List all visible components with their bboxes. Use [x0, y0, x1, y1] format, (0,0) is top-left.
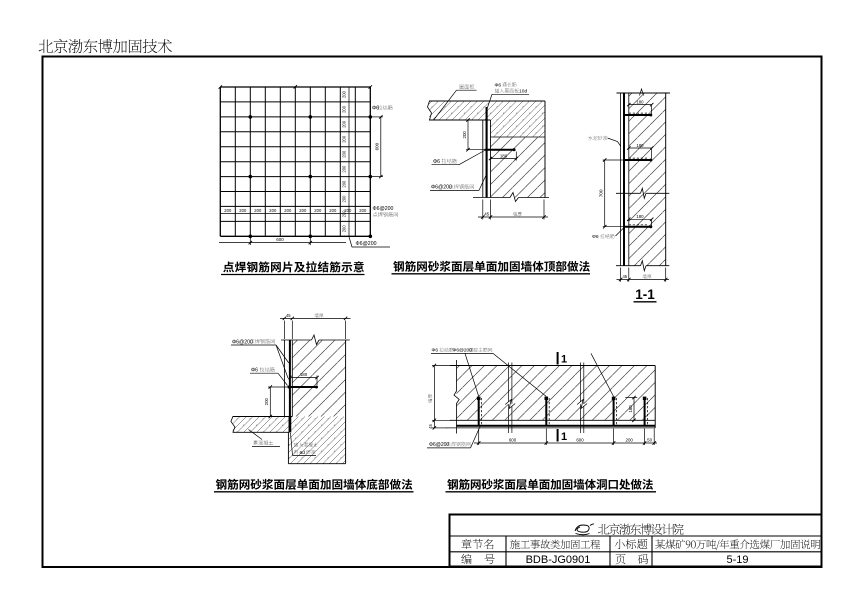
svg-text:700: 700 — [599, 189, 604, 197]
svg-text:Φ6@200: Φ6@200 — [356, 241, 377, 247]
svg-text:200: 200 — [341, 150, 346, 158]
svg-text:200: 200 — [264, 397, 269, 405]
svg-text:180: 180 — [300, 372, 308, 377]
svg-text:BDB-JG0901: BDB-JG0901 — [526, 554, 591, 566]
svg-text:Φ6: Φ6 — [495, 82, 502, 88]
svg-text:200: 200 — [299, 208, 307, 213]
svg-text:600: 600 — [375, 142, 380, 150]
svg-text:200: 200 — [341, 135, 346, 143]
svg-text:200: 200 — [329, 208, 337, 213]
svg-text:200: 200 — [341, 90, 346, 98]
svg-text:180: 180 — [500, 153, 508, 158]
svg-text:6d: 6d — [300, 450, 306, 456]
svg-text:Φ6: Φ6 — [592, 234, 599, 240]
svg-text:5-19: 5-19 — [726, 554, 748, 566]
svg-text:200: 200 — [269, 208, 277, 213]
svg-text:200: 200 — [462, 131, 467, 139]
svg-text:200: 200 — [314, 208, 322, 213]
svg-text:180: 180 — [628, 405, 633, 413]
svg-text:Φ6@200: Φ6@200 — [232, 339, 253, 345]
svg-text:Φ6@200: Φ6@200 — [453, 348, 473, 354]
svg-text:1: 1 — [561, 354, 567, 366]
svg-text:200: 200 — [626, 438, 634, 443]
svg-text:200: 200 — [224, 208, 232, 213]
svg-text:600: 600 — [276, 237, 284, 242]
svg-text:200: 200 — [239, 208, 247, 213]
svg-text:180: 180 — [636, 99, 644, 104]
svg-text:10d: 10d — [519, 89, 527, 95]
svg-text:45: 45 — [428, 424, 433, 429]
svg-text:180: 180 — [636, 143, 644, 148]
svg-text:Φ6@200: Φ6@200 — [429, 442, 449, 448]
svg-text:200: 200 — [254, 208, 262, 213]
svg-text:200: 200 — [344, 208, 352, 213]
svg-text:200: 200 — [341, 120, 346, 128]
svg-text:1-1: 1-1 — [635, 287, 655, 302]
svg-text:200: 200 — [341, 105, 346, 113]
svg-text:45: 45 — [286, 313, 291, 318]
svg-text:200: 200 — [341, 195, 346, 203]
svg-text:Φ6@200: Φ6@200 — [431, 185, 452, 191]
svg-text:1: 1 — [561, 431, 567, 443]
svg-text:50: 50 — [647, 438, 652, 443]
svg-text:200: 200 — [341, 165, 346, 173]
svg-text:Φ6@200: Φ6@200 — [373, 206, 394, 212]
svg-text:180: 180 — [636, 214, 644, 219]
svg-text:600: 600 — [576, 438, 584, 443]
svg-text:45: 45 — [622, 274, 627, 279]
svg-text:Φ6: Φ6 — [433, 159, 440, 165]
svg-text:200: 200 — [341, 225, 346, 233]
svg-text:45: 45 — [484, 212, 489, 217]
svg-text:200: 200 — [341, 180, 346, 188]
svg-text:Φ6: Φ6 — [432, 348, 439, 354]
svg-text:Φ6: Φ6 — [251, 368, 258, 374]
svg-text:600: 600 — [509, 438, 517, 443]
svg-text:200: 200 — [359, 208, 367, 213]
svg-text:200: 200 — [284, 208, 292, 213]
